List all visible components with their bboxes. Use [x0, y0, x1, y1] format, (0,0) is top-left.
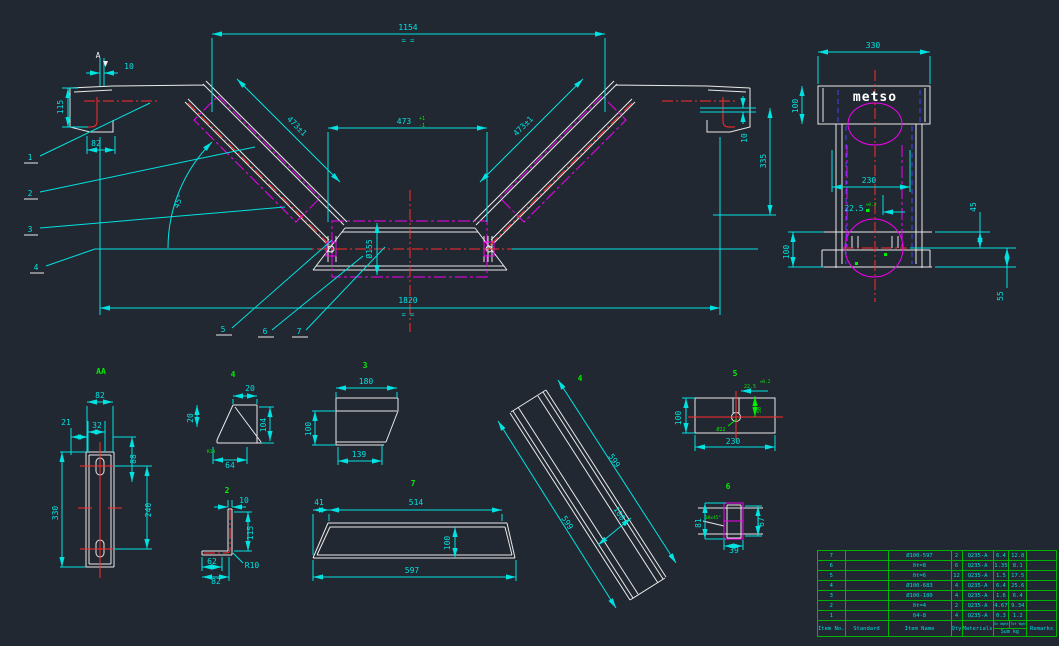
label-part2: 2 [225, 486, 230, 495]
dim-side-height: 335 [759, 154, 768, 169]
header-weights: Un Wght Tot Wght Sum kg [993, 621, 1027, 637]
note-p6: 10x45° [705, 515, 722, 521]
table-header-row: Item No. Standard Item Name Qty Material… [818, 621, 1057, 637]
detail-part3: 3 180 139 100 [304, 361, 398, 465]
table-row: 5 δt=612 Q235-A1.5 17.5 [818, 571, 1057, 581]
dim-side-offset-55: 55 [996, 291, 1005, 301]
table-row: 7 Ø100-5972 Q235-A6.4 12.8 [818, 551, 1057, 561]
label-part4-section: 4 [231, 370, 236, 379]
dim-overall-width: 1154 [398, 23, 417, 32]
dim-p4s-20-left: 20 [186, 413, 195, 423]
table-row: 1 δ4-84 Q235-A0.3 1.2 [818, 611, 1057, 621]
header-total-weight: Tot Wght [1010, 621, 1026, 629]
dim-p7-41: 41 [314, 498, 324, 507]
snap-dot [884, 253, 887, 256]
detail-section-aa: AA 82 32 21 88 330 240 [51, 367, 153, 578]
dim-p4s-20-top: 20 [245, 384, 255, 393]
dim-side-slot-tol-up: +0.2 [866, 202, 877, 208]
dim-roller-dia: Ø155 [364, 239, 374, 258]
header-qty: Qty [951, 621, 962, 637]
detail-part5: 5 100 230 22.5 +0.2 50 Ø22 [674, 369, 783, 451]
detail-part6: 6 81 67 39 10x45° [694, 482, 766, 555]
label-part7: 7 [411, 479, 416, 488]
label-section-aa: AA [96, 367, 106, 376]
balloon-1: 1 [28, 153, 33, 162]
dim-side-slot: 22.5 [844, 204, 863, 213]
parts-table: 7 Ø100-5972 Q235-A6.4 12.8 6 δt=86 Q235-… [817, 550, 1057, 637]
dim-p4s-64: 64 [225, 461, 235, 470]
dim-p4f-599a: 599 [606, 452, 622, 469]
dim-side-offset-45: 45 [969, 202, 978, 212]
dim-aa-21: 21 [61, 418, 71, 427]
label-part4-face: 4 [578, 374, 583, 383]
dim-bracket-height: 115 [56, 100, 65, 115]
dim-roller-right: 473±1 [512, 114, 536, 138]
dim-side-slot-tol-dn: 0 [868, 208, 871, 214]
dim-side-inner-width: 230 [862, 176, 877, 185]
dim-p7-100: 100 [443, 536, 452, 551]
balloon-6: 6 [263, 327, 268, 336]
header-item-no: Item No. [818, 621, 846, 637]
table-row: 2 δt=42 Q235-A4.67 9.34 [818, 601, 1057, 611]
snap-dot [855, 262, 858, 265]
detail-part7: 7 41 514 100 597 [313, 479, 516, 581]
main-assembly-view: A 1154 = = 473±1 473 +1 -1 473±1 10 115 … [24, 23, 776, 337]
dim-side-plate-height: 100 [791, 99, 800, 114]
dim-p7-597: 597 [405, 566, 420, 575]
balloon-7: 7 [297, 327, 302, 336]
label-part3: 3 [363, 361, 368, 370]
label-part6: 6 [726, 482, 731, 491]
dim-roller-center: 473 [397, 117, 412, 126]
dim-p5-100: 100 [674, 411, 683, 426]
dim-p5-slot: 22.5 [744, 384, 756, 390]
dim-aa-82: 82 [95, 391, 105, 400]
table-row: 3 Ø100-1804 Q235-A1.6 6.4 [818, 591, 1057, 601]
dim-bracket-width: 82 [91, 139, 101, 148]
table-row: 6 δt=86 Q235-A1.35 8.1 [818, 561, 1057, 571]
note-p4s: R10 [207, 449, 215, 455]
side-view: metso 330 100 230 22.5 +0.2 0 100 45 55 [782, 41, 1016, 302]
section-marker-a: A [96, 51, 101, 60]
detail-part4-face: 4 599 599 100 [498, 374, 676, 608]
cad-drawing-canvas[interactable]: A 1154 = = 473±1 473 +1 -1 473±1 10 115 … [0, 0, 1059, 646]
dim-p5-hole: Ø22 [716, 426, 725, 433]
dim-equal-marks: = = [402, 37, 415, 45]
dim-p2-82: 82 [211, 577, 221, 586]
dim-p7-514: 514 [409, 498, 424, 507]
dim-flange-offset-right: 10 [740, 133, 749, 143]
dim-p3-180: 180 [359, 377, 374, 386]
dim-p3-139: 139 [352, 450, 367, 459]
detail-part4-section: 4 20 104 64 20 R10 [186, 370, 274, 470]
dim-base-width: 1820 [398, 296, 417, 305]
balloon-5: 5 [221, 325, 226, 334]
dim-aa-240: 240 [144, 503, 153, 518]
header-sum: Sum kg [994, 629, 1027, 637]
header-item-name: Item Name [888, 621, 951, 637]
dim-p4s-104: 104 [259, 418, 268, 433]
dim-equal-marks-2: = = [402, 311, 415, 319]
dim-aa-32: 32 [92, 421, 102, 430]
dim-aa-330: 330 [51, 506, 60, 521]
header-materials: Materials [962, 621, 993, 637]
detail-part2: 2 10 115 62 82 R10 [202, 486, 259, 586]
dim-angle: 45° [172, 193, 185, 210]
dim-roller-left: 473±1 [285, 115, 309, 139]
dim-p5-230: 230 [726, 437, 741, 446]
dim-roller-center-tol-dn: -1 [419, 123, 425, 129]
dim-p5-50: 50 [757, 407, 763, 413]
dim-p6-39: 39 [729, 546, 739, 555]
dim-side-lower-height: 100 [782, 245, 791, 260]
dim-p6-81: 81 [694, 518, 703, 528]
dim-p2-62: 62 [207, 557, 217, 566]
header-unit-weight: Un Wght [994, 621, 1011, 629]
dim-p3-100: 100 [304, 422, 313, 437]
dim-p2-r10: R10 [245, 561, 260, 570]
header-standard: Standard [845, 621, 888, 637]
dim-flange-offset-left: 10 [124, 62, 134, 71]
table-row: 4 Ø100-6834 Q235-A6.4 25.6 [818, 581, 1057, 591]
header-remarks: Remarks [1027, 621, 1057, 637]
dim-p5-slot-tol: +0.2 [760, 379, 771, 385]
brand-logo: metso [853, 90, 897, 105]
dim-side-width: 330 [866, 41, 881, 50]
dim-p6-67: 67 [757, 517, 766, 527]
dim-roller-center-tol-up: +1 [419, 116, 425, 122]
dim-aa-88: 88 [129, 454, 138, 464]
dim-p2-10: 10 [239, 496, 249, 505]
label-part5: 5 [733, 369, 738, 378]
balloon-3: 3 [28, 225, 33, 234]
balloon-2: 2 [28, 189, 33, 198]
dim-p2-115: 115 [246, 526, 255, 541]
balloon-4: 4 [34, 263, 39, 272]
